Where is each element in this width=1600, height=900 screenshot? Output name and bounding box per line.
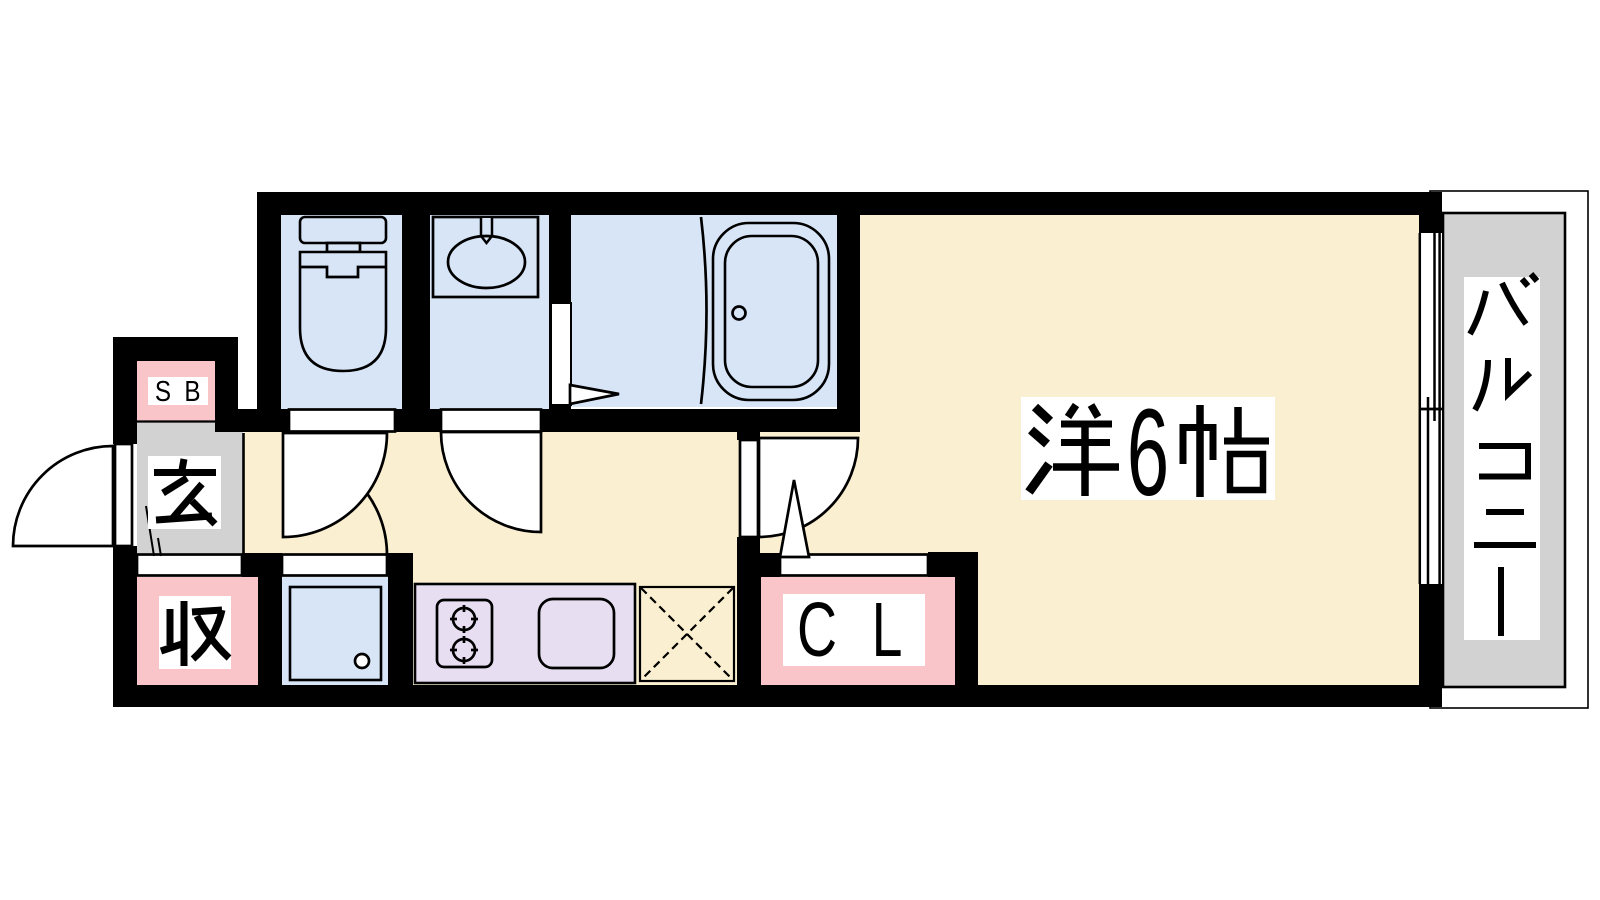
svg-text:S: S <box>155 375 171 407</box>
svg-text:L: L <box>872 587 903 673</box>
svg-text:C: C <box>797 587 837 673</box>
svg-text:6: 6 <box>1127 383 1169 521</box>
svg-text:B: B <box>184 375 200 407</box>
